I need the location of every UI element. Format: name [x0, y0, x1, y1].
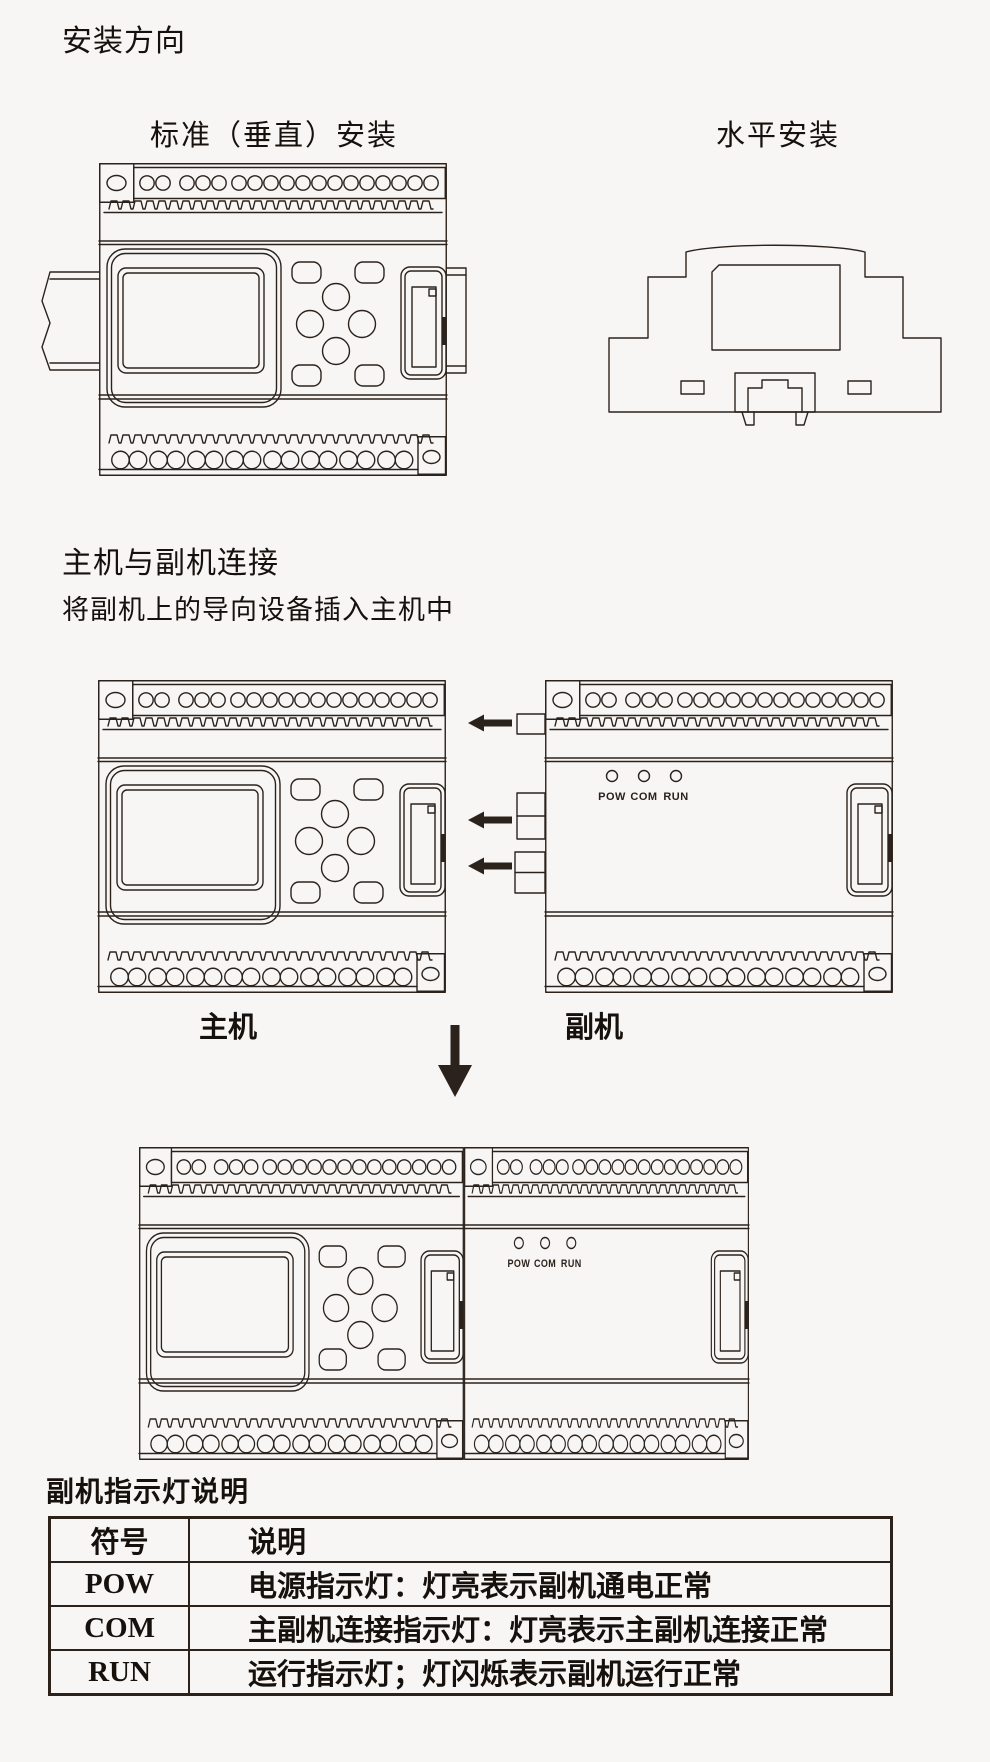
insert-arrow-icon — [468, 858, 512, 875]
led-label: POW — [508, 1258, 531, 1270]
connect-instruction: 将副机上的导向设备插入主机中 — [62, 588, 454, 627]
cell-description: 运行指示灯；灯闪烁表示副机运行正常 — [189, 1650, 892, 1695]
down-arrow-icon — [438, 1025, 472, 1099]
led-label: RUN — [663, 791, 688, 803]
combined-main-unit-figure — [139, 1147, 464, 1460]
indicator-table-header-row: 符号 说明 — [50, 1518, 892, 1563]
main-unit-drawing — [98, 681, 446, 993]
cell-description: 电源指示灯：灯亮表示副机通电正常 — [189, 1562, 892, 1606]
led-label: POW — [598, 791, 626, 803]
main-unit-label: 主机 — [168, 1004, 288, 1046]
main-unit-drawing — [99, 164, 447, 476]
header-symbol: 符号 — [50, 1518, 190, 1563]
insert-arrow-icon — [468, 715, 512, 732]
table-row: POW 电源指示灯：灯亮表示副机通电正常 — [50, 1562, 892, 1606]
led-indicator — [671, 771, 682, 782]
page-title: 安装方向 — [62, 16, 186, 60]
table-row: RUN 运行指示灯；灯闪烁表示副机运行正常 — [50, 1650, 892, 1695]
led-label: RUN — [561, 1258, 582, 1270]
sub-unit-drawing: POWCOMRUN — [545, 681, 893, 993]
indicator-section-heading: 副机指示灯说明 — [46, 1470, 249, 1510]
combined-sub-unit-figure: POWCOMRUN — [464, 1147, 749, 1460]
led-indicator — [514, 1238, 523, 1249]
insert-arrow-icon — [468, 812, 512, 829]
cell-symbol: POW — [50, 1562, 190, 1606]
indicator-table: 符号 说明 POW 电源指示灯：灯亮表示副机通电正常 COM 主副机连接指示灯：… — [48, 1516, 893, 1696]
vertical-install-figure — [36, 155, 476, 485]
led-indicator — [607, 771, 618, 782]
led-indicator — [567, 1238, 576, 1249]
connect-section-heading: 主机与副机连接 — [62, 538, 279, 582]
cell-symbol: RUN — [50, 1650, 190, 1695]
horizontal-install-label: 水平安装 — [716, 112, 840, 154]
sub-unit-drawing: POWCOMRUN — [464, 1148, 749, 1460]
led-indicator — [541, 1238, 550, 1249]
sub-unit-figure: POWCOMRUN — [460, 675, 910, 1000]
horizontal-install-figure — [588, 228, 960, 433]
manual-page: 安装方向 标准（垂直）安装 水平安装 主机与副机连接 将副机上的导向设备插入主机… — [0, 0, 990, 1762]
vertical-install-label: 标准（垂直）安装 — [150, 112, 398, 154]
led-label: COM — [630, 791, 657, 803]
led-indicator — [639, 771, 650, 782]
main-unit-drawing — [139, 1148, 464, 1460]
led-label: COM — [534, 1258, 556, 1270]
sub-unit-label: 副机 — [534, 1004, 654, 1046]
table-row: COM 主副机连接指示灯：灯亮表示主副机连接正常 — [50, 1606, 892, 1650]
cell-symbol: COM — [50, 1606, 190, 1650]
cell-description: 主副机连接指示灯：灯亮表示主副机连接正常 — [189, 1606, 892, 1650]
header-description: 说明 — [189, 1518, 892, 1563]
main-unit-figure — [98, 680, 446, 993]
